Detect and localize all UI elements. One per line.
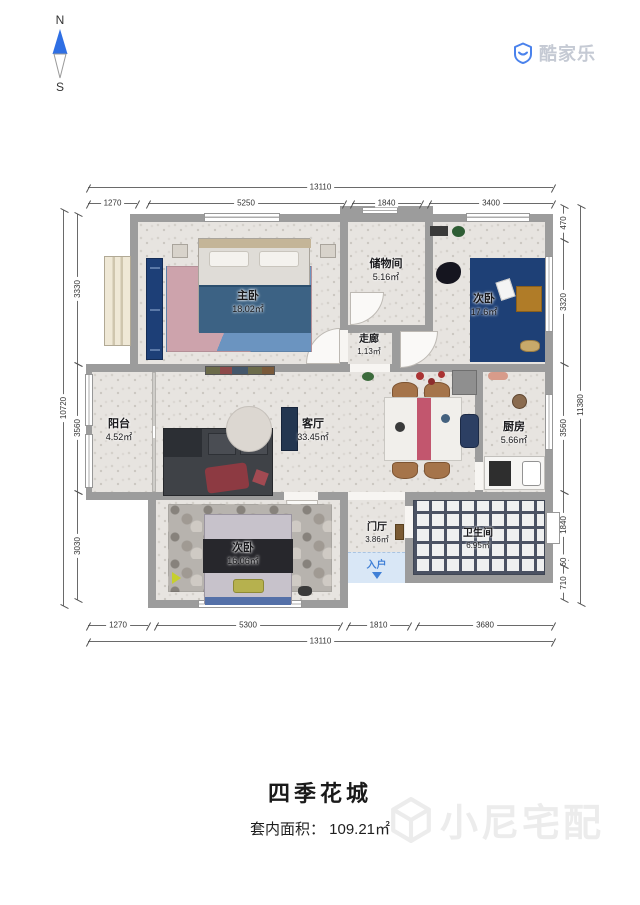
dim-value: 3560 (560, 416, 568, 440)
wall-bottom-left (148, 492, 156, 608)
dim-value: 5250 (234, 199, 258, 207)
table-runner (417, 398, 431, 460)
room-name: 厨房 (472, 421, 556, 435)
room-label-kitchen: 厨房 5.66㎡ (472, 421, 556, 446)
bedroom3-marker (172, 572, 181, 584)
window-bedroom2-top (466, 213, 530, 222)
table-plate (395, 422, 405, 432)
wardrobe-shelf-mark (150, 349, 160, 351)
room-name: 次卧 (201, 542, 285, 556)
dim-bottom-seg4: 3680 (417, 625, 553, 626)
wall-bath-bottom (405, 575, 553, 583)
room-name: 阳台 (77, 418, 161, 432)
room-area: 16.06㎡ (201, 556, 285, 567)
wall-mid-horizontal (86, 364, 553, 372)
room-area: 3.86㎡ (335, 535, 419, 545)
room-area: 1.13㎡ (327, 347, 411, 357)
kitchen-counter (484, 456, 545, 490)
shield-smile-icon (512, 42, 534, 64)
window-master-top (204, 213, 280, 222)
table-plate (441, 414, 450, 423)
room-label-balcony: 阳台 4.52㎡ (77, 418, 161, 443)
wall-lower-horizontal (86, 492, 553, 500)
dim-value: 1270 (106, 621, 130, 629)
dim-bottom-seg2: 5300 (156, 625, 340, 626)
flower-deco (438, 371, 445, 378)
living-cabinet (452, 370, 477, 395)
opening-kitchen-door (475, 462, 483, 490)
master-bed-headboard (199, 239, 311, 248)
project-title: 四季花城 (0, 776, 640, 808)
sofa-chaise (164, 429, 202, 457)
kujiale-logo: 酷家乐 (512, 40, 596, 66)
master-bed (198, 238, 310, 332)
dim-value: 1840 (560, 513, 568, 537)
kitchen-sink (522, 461, 541, 486)
room-name: 卫生间 (436, 528, 520, 541)
bay-window-master-left (104, 256, 131, 346)
dim-value: 1270 (101, 199, 125, 207)
dim-value: 3320 (560, 290, 568, 314)
ac-unit-box (546, 512, 560, 544)
dim-left-seg3: 3030 (77, 492, 78, 600)
dim-bottom-total: 13110 (88, 641, 553, 642)
dim-top-seg4: 3400 (429, 203, 553, 204)
entrance-text: 入户 (367, 560, 387, 571)
dim-value: 1810 (367, 621, 391, 629)
room-label-hall: 门厅 3.86㎡ (335, 522, 419, 545)
wall-left-upper (130, 214, 138, 372)
dining-chair (424, 462, 450, 479)
window-storage-top (362, 207, 398, 214)
dim-left-seg1: 3330 (77, 214, 78, 364)
room-area: 5.66㎡ (472, 435, 556, 446)
entrance-arrow-icon (372, 572, 382, 579)
room-name: 主卧 (206, 290, 290, 304)
room-label-master-bedroom: 主卧 18.02㎡ (206, 290, 290, 315)
master-nightstand-left (172, 244, 188, 258)
room-area: 5.16㎡ (344, 272, 428, 283)
room-label-storage: 储物间 5.16㎡ (344, 258, 428, 283)
dim-left-total: 10720 (63, 210, 64, 606)
dim-value: 13110 (307, 637, 335, 645)
bedroom2-plant (452, 226, 465, 237)
room-label-bedroom3: 次卧 16.06㎡ (201, 542, 285, 567)
room-label-living-room: 客厅 33.45㎡ (271, 418, 355, 443)
dim-top-seg2: 5250 (148, 203, 344, 204)
room-label-corridor: 走廊 1.13㎡ (327, 334, 411, 357)
bedroom2-shelf (430, 226, 448, 236)
area-summary-value: 109.21㎡ (329, 821, 390, 838)
wardrobe-shelf-mark (150, 267, 160, 269)
room-label-bedroom2: 次卧 17.6㎡ (442, 293, 526, 318)
dim-right-seg6: 710 (563, 566, 564, 600)
dim-value: 710 (560, 573, 568, 592)
dim-bottom-seg3: 1810 (348, 625, 409, 626)
wall-bedroom3-right (340, 492, 348, 608)
dim-right-seg2: 3320 (563, 240, 564, 364)
compass: N S (46, 14, 74, 94)
master-bed-pillow-left (209, 251, 249, 267)
bedroom3-headboard (205, 597, 291, 605)
master-bed-pillow-right (259, 251, 299, 267)
flower-deco (428, 378, 435, 385)
area-summary-label: 套内面积： (250, 821, 325, 838)
opening-corridor-living (350, 364, 390, 372)
kitchen-tray (488, 372, 508, 380)
dim-top-seg3: 1840 (352, 203, 421, 204)
opening-hall-top (348, 492, 405, 500)
kitchen-bowl (512, 394, 527, 409)
bedroom3-pillow (233, 579, 264, 593)
compass-south-label: S (46, 81, 74, 94)
dim-value: 3030 (74, 534, 82, 558)
dim-right-seg3: 3560 (563, 364, 564, 492)
floor-plan-page: N S 酷家乐 (0, 0, 640, 905)
dim-right-seg1: 470 (563, 206, 564, 240)
dim-value: 3330 (74, 277, 82, 301)
bedroom2-deco (520, 340, 540, 352)
room-name: 次卧 (442, 293, 526, 307)
room-name: 储物间 (344, 258, 428, 272)
room-label-bathroom: 卫生间 6.95㎡ (436, 528, 520, 551)
window-bedroom2-right (545, 256, 553, 332)
dim-value: 11380 (577, 391, 585, 419)
dim-right-total: 11380 (580, 206, 581, 604)
compass-needle-icon (49, 28, 71, 80)
dim-value: 1840 (375, 199, 399, 207)
dim-value: 13110 (307, 183, 335, 191)
dim-value: 470 (560, 213, 568, 232)
room-area: 17.6㎡ (442, 307, 526, 318)
plant-small (362, 372, 374, 381)
flower-deco (416, 372, 424, 380)
room-name: 客厅 (271, 418, 355, 432)
room-name: 门厅 (335, 522, 419, 535)
dim-top-seg1: 1270 (88, 203, 137, 204)
living-round-rug (226, 406, 272, 452)
master-wardrobe (146, 258, 163, 360)
room-name: 走廊 (327, 334, 411, 347)
area-summary: 套内面积： 109.21㎡ (0, 818, 640, 839)
master-nightstand-right (320, 244, 336, 258)
dining-table (384, 397, 462, 461)
room-area: 6.95㎡ (436, 541, 520, 551)
room-area: 18.02㎡ (206, 304, 290, 315)
living-shelf-deco (205, 366, 275, 375)
entrance-label: 入户 (350, 556, 403, 579)
dim-bottom-seg1: 1270 (88, 625, 148, 626)
dim-value: 10720 (60, 394, 68, 422)
sofa-pillow (252, 469, 269, 486)
dim-value: 5300 (236, 621, 260, 629)
opening-bedroom3-door (284, 492, 318, 500)
wardrobe-shelf-mark (150, 309, 160, 311)
bedroom3-slippers (298, 586, 312, 596)
dim-top-total: 13110 (88, 187, 553, 188)
kitchen-stove (489, 461, 511, 486)
brand-name: 酷家乐 (539, 40, 596, 66)
room-area: 4.52㎡ (77, 432, 161, 443)
sofa-red-throw (204, 462, 249, 494)
dim-value: 3680 (473, 621, 497, 629)
compass-north-label: N (46, 14, 74, 27)
dining-chair (392, 462, 418, 479)
dim-value: 3400 (479, 199, 503, 207)
room-area: 33.45㎡ (271, 432, 355, 443)
dim-right-seg4: 1840 (563, 492, 564, 558)
